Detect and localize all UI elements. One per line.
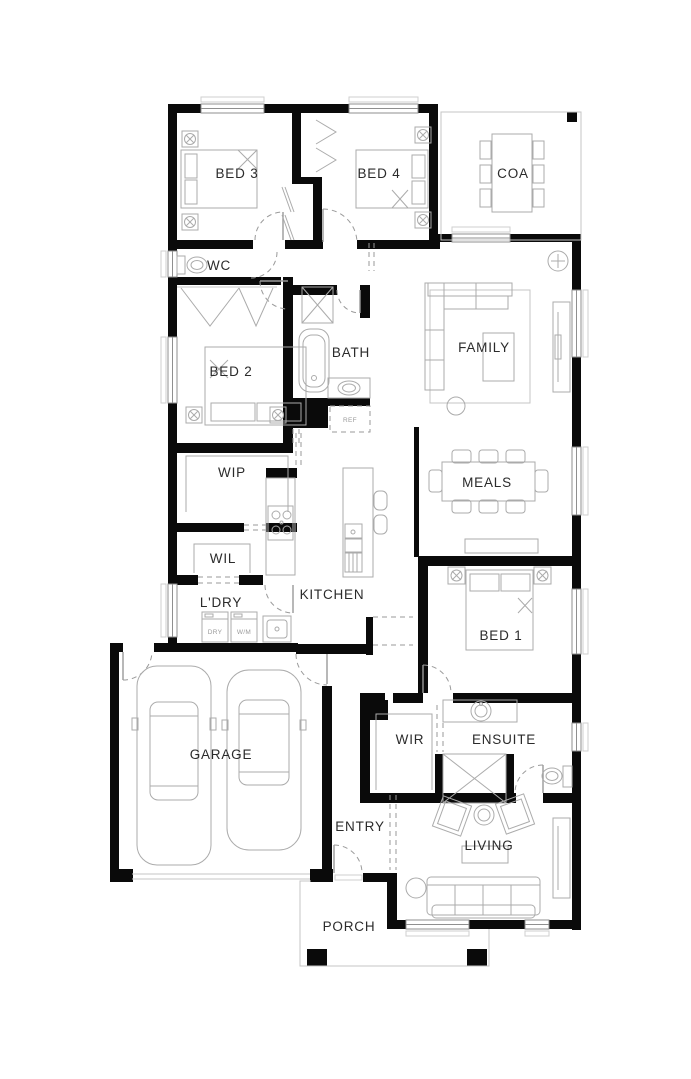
wc-toilet-icon [177,256,207,274]
bed3-furniture [181,131,294,240]
window [572,290,588,357]
family-furniture [425,251,570,415]
laundry-sink-icon [263,616,291,642]
room-label-entry: ENTRY [335,819,385,834]
room-label-garage: GARAGE [190,747,253,762]
toilet-icon [542,766,572,787]
wall-light-icon [534,567,551,584]
room-label-wip: WIP [218,465,246,480]
tv-unit-icon [553,302,570,392]
room-label-coa: COA [497,166,529,181]
room-label-ensuite: ENSUITE [472,732,536,747]
robe-shelves-icon [376,714,432,790]
vanity-sink-icon [443,700,517,722]
window [161,337,177,403]
vanity-sink-icon [328,378,370,398]
laundry-fixtures [202,612,291,642]
side-table-icon [474,805,494,825]
island-bench-icon [343,468,373,577]
bathtub-icon [299,329,329,392]
floor-plan-drawing: BED 3 BED 4 COA WC BATH FAMILY BED 2 WIP… [0,0,691,1079]
door-bath [337,290,360,313]
door-garage-left [123,652,152,680]
room-label-bed1: BED 1 [479,628,522,643]
dining-chair-icon [506,500,525,513]
door-front-entry [334,845,362,880]
room-label-wir: WIR [396,732,425,747]
wall-light-icon [182,131,198,147]
dining-chair-icon [479,500,498,513]
sofa-icon [425,283,512,390]
room-label-bed4: BED 4 [357,166,400,181]
dryer-icon [202,612,228,642]
room-label-meals: MEALS [462,475,512,490]
dining-chair-icon [452,450,471,463]
window [161,251,177,277]
door-laundry [265,585,293,613]
dining-chair-icon [506,450,525,463]
dining-chair-icon [452,500,471,513]
room-label-bath: BATH [332,345,370,360]
room-label-ldry: L'DRY [200,595,242,610]
washing-machine-icon [231,612,257,642]
living-furniture [406,794,570,918]
robe-sliding-doors-icon [282,187,294,240]
sofa-icon [427,877,540,918]
door-hall-wc [251,252,277,278]
window [349,97,418,113]
room-label-wc: WC [207,258,231,273]
window [572,589,588,654]
stool-icon [374,515,387,534]
dining-chair-icon [429,470,442,492]
wall-light-icon [182,214,198,230]
wall-light-icon [415,212,431,228]
room-label-bed2: BED 2 [209,364,252,379]
robe-sliding-doors-icon [316,120,336,172]
wall-light-icon [415,127,431,143]
appliance-label-fridge: REF [343,417,357,424]
door-garage-internal [296,654,327,685]
dining-chair-icon [535,470,548,492]
side-table-icon [406,878,426,898]
appliance-label-dryer: DRY [208,629,223,636]
window [572,723,588,751]
tv-unit-icon [553,818,570,898]
ceiling-light-icon [548,251,568,271]
kitchen-fixtures [266,468,387,577]
window [161,584,177,637]
wall-light-icon [186,407,202,423]
room-label-wil: WIL [210,551,236,566]
window [525,920,549,936]
windows [161,97,588,936]
sideboard-icon [465,539,538,553]
room-label-family: FAMILY [458,340,510,355]
wall-light-icon [448,567,465,584]
room-label-bed3: BED 3 [215,166,258,181]
stool-icon [374,491,387,510]
car-icon [132,666,216,865]
bed2-robe-icon [177,287,277,326]
dining-chair-icon [479,450,498,463]
side-table-icon [447,397,465,415]
appliance-label-washer: W/M [237,629,251,636]
room-label-living: LIVING [464,838,513,853]
door-bed4 [323,209,357,243]
garage-furniture [132,666,306,865]
window [406,920,469,936]
window [201,97,264,113]
door-bed3 [255,212,283,240]
door-ensuite [515,765,543,793]
window [572,447,588,515]
room-label-kitchen: KITCHEN [300,587,365,602]
floor-plan-page: BED 3 BED 4 COA WC BATH FAMILY BED 2 WIP… [0,0,691,1079]
room-label-porch: PORCH [323,919,376,934]
meals-furniture [429,450,548,553]
